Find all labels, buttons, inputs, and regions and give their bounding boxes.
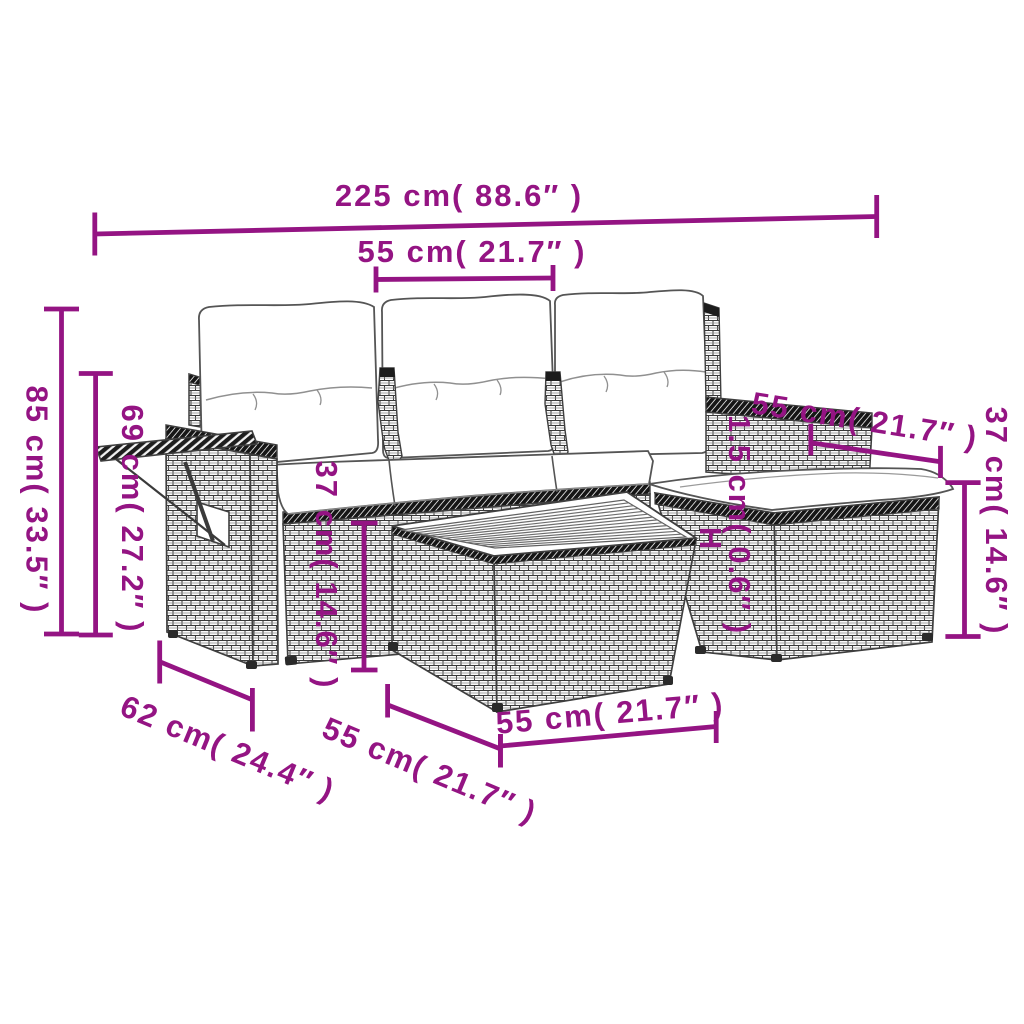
svg-text:H: H [693, 527, 728, 551]
svg-text:85 cm( 33.5″ ): 85 cm( 33.5″ ) [20, 386, 55, 615]
svg-text:1.5 cm( 0.6″ ): 1.5 cm( 0.6″ ) [722, 415, 757, 635]
svg-text:225 cm( 88.6″ ): 225 cm( 88.6″ ) [335, 178, 583, 213]
svg-text:37 cm( 14.6″ ): 37 cm( 14.6″ ) [979, 407, 1014, 636]
svg-text:69 cm( 27.2″ ): 69 cm( 27.2″ ) [115, 405, 150, 634]
svg-text:37 cm( 14.6″ ): 37 cm( 14.6″ ) [309, 461, 344, 690]
svg-text:55 cm( 21.7″ ): 55 cm( 21.7″ ) [358, 234, 587, 269]
svg-text:62 cm( 24.4″ ): 62 cm( 24.4″ ) [115, 688, 340, 808]
